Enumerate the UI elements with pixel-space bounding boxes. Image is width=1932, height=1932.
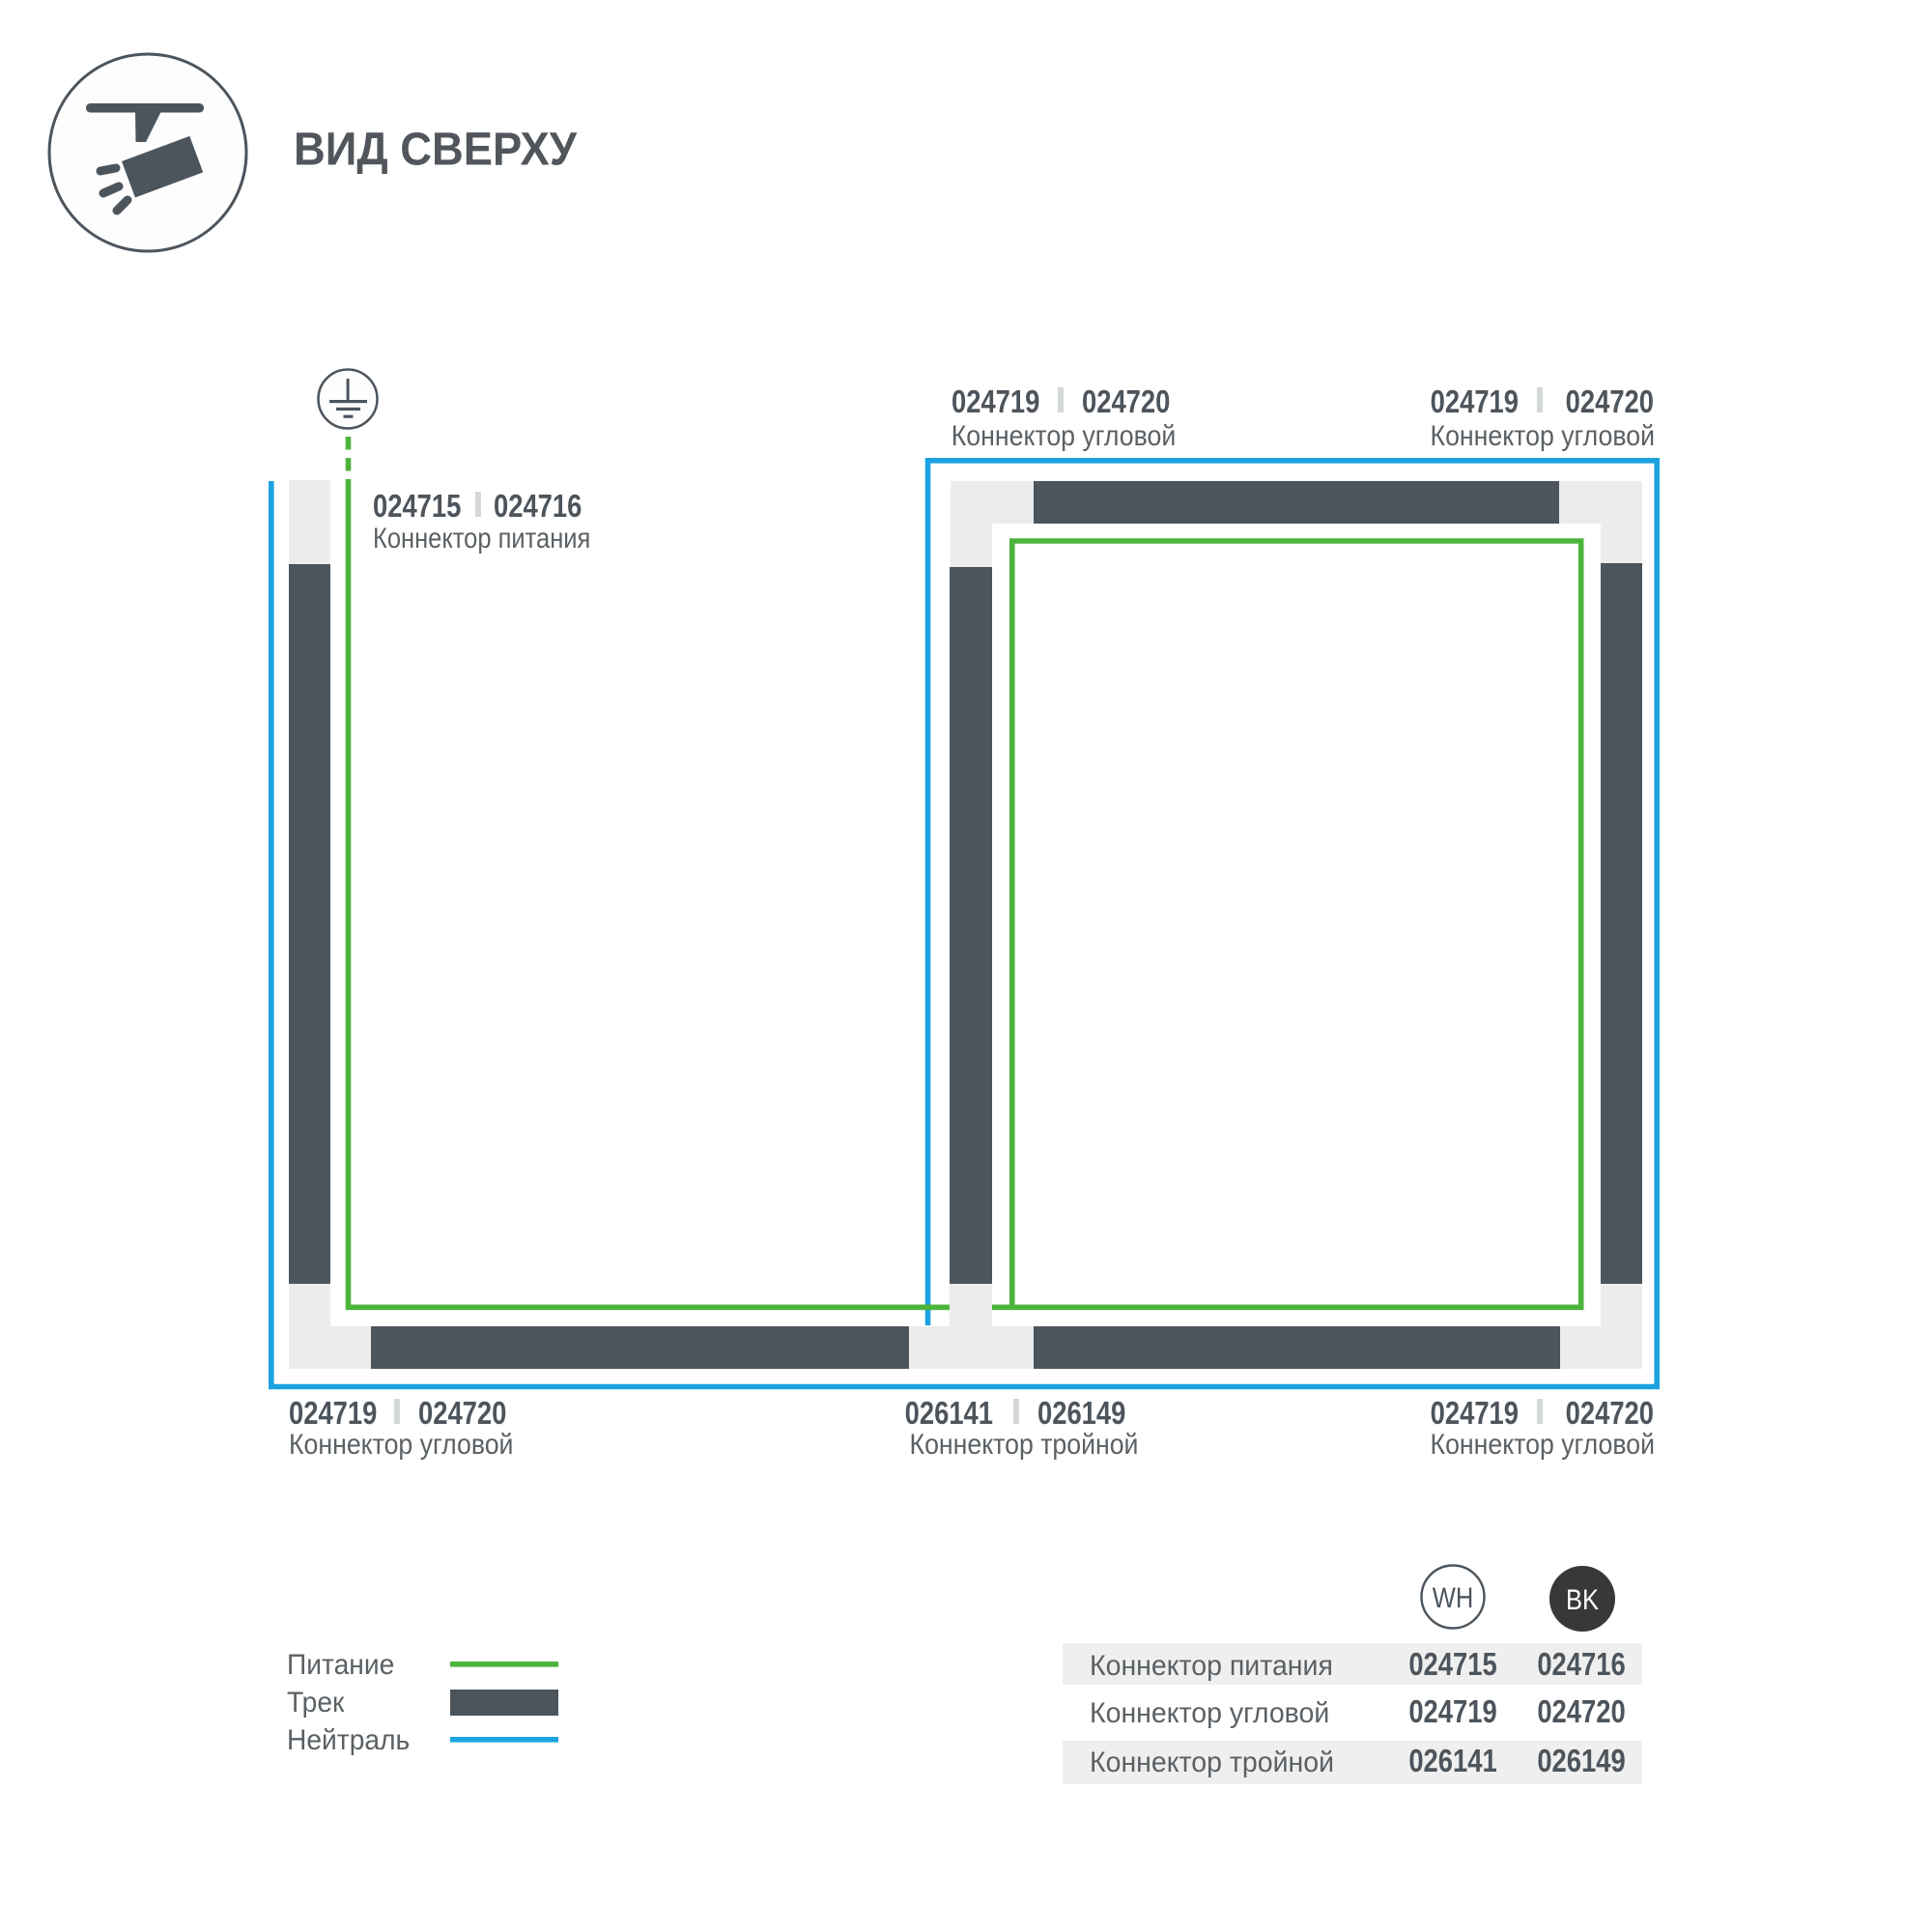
svg-text:Коннектор угловой: Коннектор угловой — [1090, 1697, 1329, 1729]
svg-text:024719: 024719 — [1431, 385, 1519, 420]
svg-text:Коннектор питания: Коннектор питания — [1090, 1650, 1333, 1682]
svg-text:024716: 024716 — [1537, 1648, 1625, 1683]
svg-text:ВИД СВЕРХУ: ВИД СВЕРХУ — [294, 123, 578, 174]
svg-text:Коннектор угловой: Коннектор угловой — [952, 420, 1176, 453]
svg-text:024719: 024719 — [289, 1397, 377, 1432]
svg-text:Коннектор угловой: Коннектор угловой — [1431, 420, 1655, 453]
svg-text:024720: 024720 — [1082, 385, 1170, 420]
svg-text:024719: 024719 — [952, 385, 1039, 420]
svg-text:026149: 026149 — [1537, 1745, 1625, 1779]
svg-text:Нейтраль: Нейтраль — [287, 1724, 410, 1756]
svg-text:024719: 024719 — [1408, 1695, 1496, 1730]
svg-text:024720: 024720 — [1537, 1695, 1625, 1730]
svg-text:Коннектор угловой: Коннектор угловой — [289, 1429, 513, 1462]
svg-text:024715: 024715 — [1408, 1648, 1496, 1683]
svg-text:Коннектор тройной: Коннектор тройной — [1090, 1747, 1334, 1778]
svg-text:024715: 024715 — [373, 490, 461, 525]
svg-text:026141: 026141 — [905, 1397, 993, 1432]
svg-text:024720: 024720 — [1566, 385, 1654, 420]
svg-text:WH: WH — [1433, 1581, 1473, 1613]
svg-text:Коннектор угловой: Коннектор угловой — [1431, 1429, 1655, 1462]
svg-text:024716: 024716 — [494, 490, 582, 525]
svg-text:Трек: Трек — [287, 1687, 345, 1719]
svg-text:026149: 026149 — [1037, 1397, 1125, 1432]
svg-text:024720: 024720 — [1566, 1397, 1654, 1432]
svg-text:Питание: Питание — [287, 1649, 394, 1681]
svg-text:Коннектор питания: Коннектор питания — [373, 522, 590, 554]
svg-text:Коннектор тройной: Коннектор тройной — [910, 1429, 1139, 1462]
svg-text:024719: 024719 — [1431, 1397, 1519, 1432]
svg-text:026141: 026141 — [1408, 1745, 1496, 1779]
svg-text:024720: 024720 — [418, 1397, 506, 1432]
svg-text:BK: BK — [1566, 1583, 1599, 1615]
